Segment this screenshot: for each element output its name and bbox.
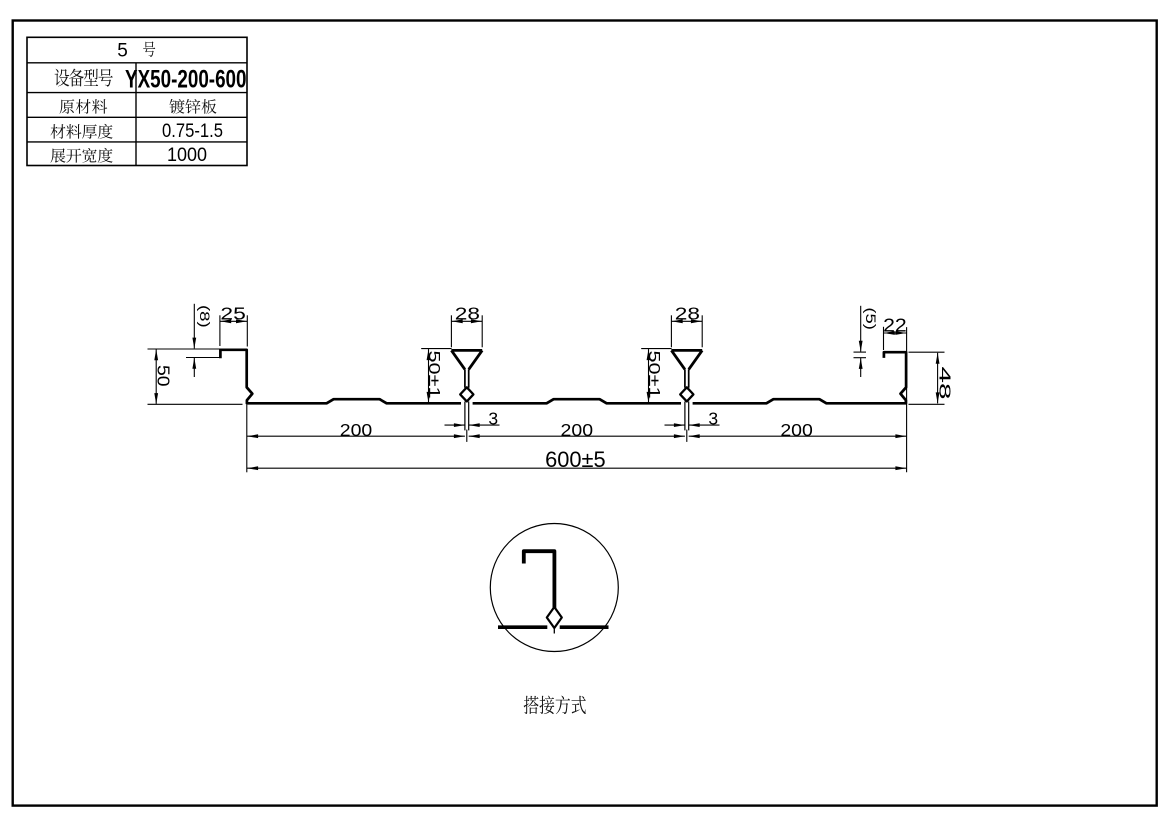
svg-text:28: 28 xyxy=(675,303,700,323)
svg-text:5: 5 xyxy=(117,41,128,62)
svg-text:28: 28 xyxy=(455,303,480,323)
svg-text:0.75-1.5: 0.75-1.5 xyxy=(162,121,223,142)
svg-text:600±5: 600±5 xyxy=(545,447,606,472)
svg-text:50±1: 50±1 xyxy=(425,351,442,399)
svg-text:200: 200 xyxy=(561,420,594,440)
svg-text:YX50-200-600: YX50-200-600 xyxy=(125,66,247,94)
svg-text:48: 48 xyxy=(936,367,953,400)
svg-text:3: 3 xyxy=(488,408,498,428)
svg-text:(5): (5) xyxy=(863,307,879,330)
svg-text:25: 25 xyxy=(220,303,245,323)
svg-text:22: 22 xyxy=(883,316,907,336)
svg-text:200: 200 xyxy=(780,420,813,440)
svg-text:200: 200 xyxy=(340,420,373,440)
svg-text:50±1: 50±1 xyxy=(645,351,662,399)
svg-text:1000: 1000 xyxy=(167,145,207,166)
svg-text:(8): (8) xyxy=(197,305,213,328)
svg-text:3: 3 xyxy=(708,408,718,428)
svg-text:50: 50 xyxy=(154,365,174,387)
